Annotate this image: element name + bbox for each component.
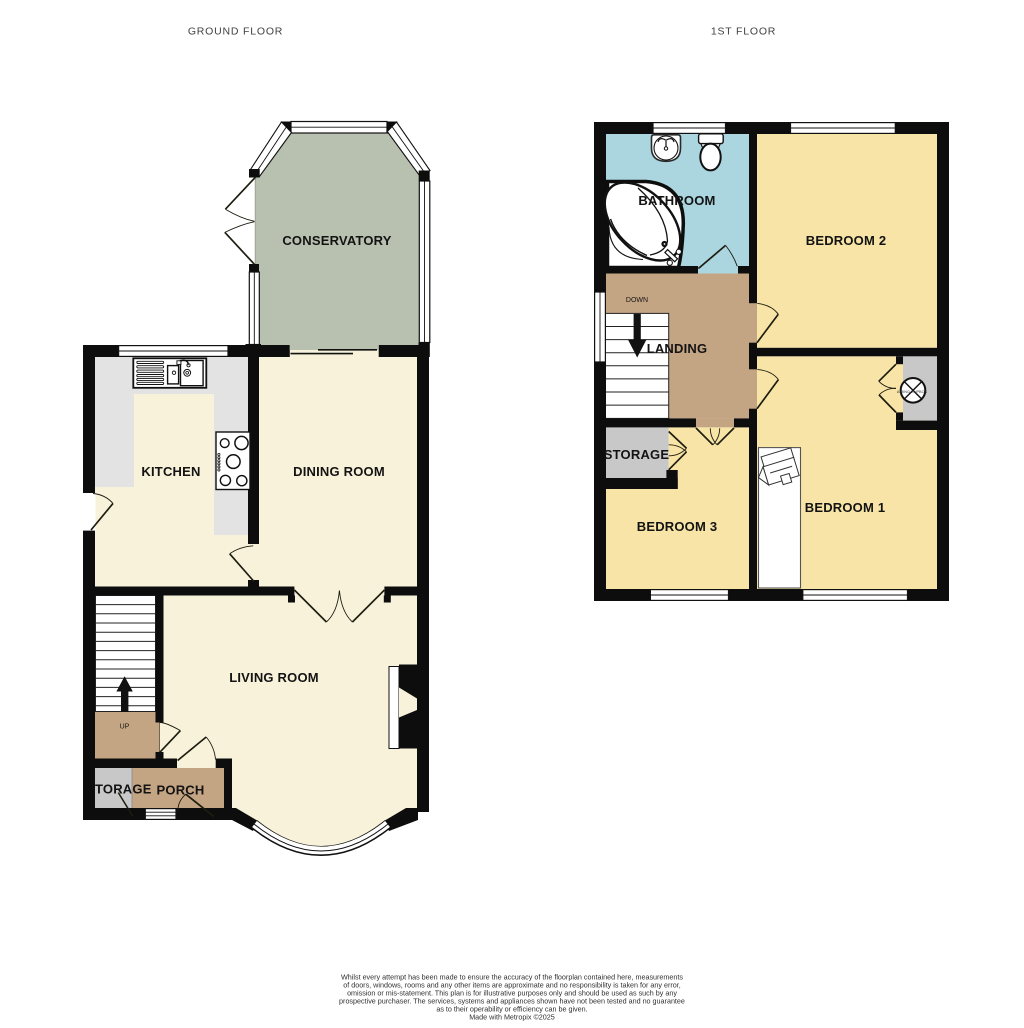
svg-text:1ST FLOOR: 1ST FLOOR	[711, 26, 776, 38]
svg-text:BEDROOM 3: BEDROOM 3	[637, 519, 718, 534]
svg-text:CONSERVATORY: CONSERVATORY	[282, 233, 391, 248]
svg-text:TORAGE: TORAGE	[95, 782, 152, 797]
svg-text:PORCH: PORCH	[157, 783, 205, 798]
svg-text:Made with Metropix ©2025: Made with Metropix ©2025	[469, 1012, 555, 1021]
svg-text:STORAGE: STORAGE	[604, 447, 670, 462]
svg-text:KITCHEN: KITCHEN	[141, 464, 200, 479]
svg-text:BEDROOM 2: BEDROOM 2	[806, 233, 887, 248]
svg-text:LANDING: LANDING	[647, 341, 708, 356]
svg-text:UP: UP	[120, 724, 130, 731]
svg-text:BEDROOM 1: BEDROOM 1	[805, 500, 886, 515]
svg-text:LIVING ROOM: LIVING ROOM	[229, 670, 319, 685]
svg-text:DINING ROOM: DINING ROOM	[293, 464, 385, 479]
svg-text:AIRING CUPBOA: AIRING CUPBOA	[897, 390, 928, 394]
svg-text:DOWN: DOWN	[626, 297, 648, 304]
svg-text:GROUND FLOOR: GROUND FLOOR	[188, 26, 283, 38]
svg-text:BATHROOM: BATHROOM	[638, 193, 715, 208]
